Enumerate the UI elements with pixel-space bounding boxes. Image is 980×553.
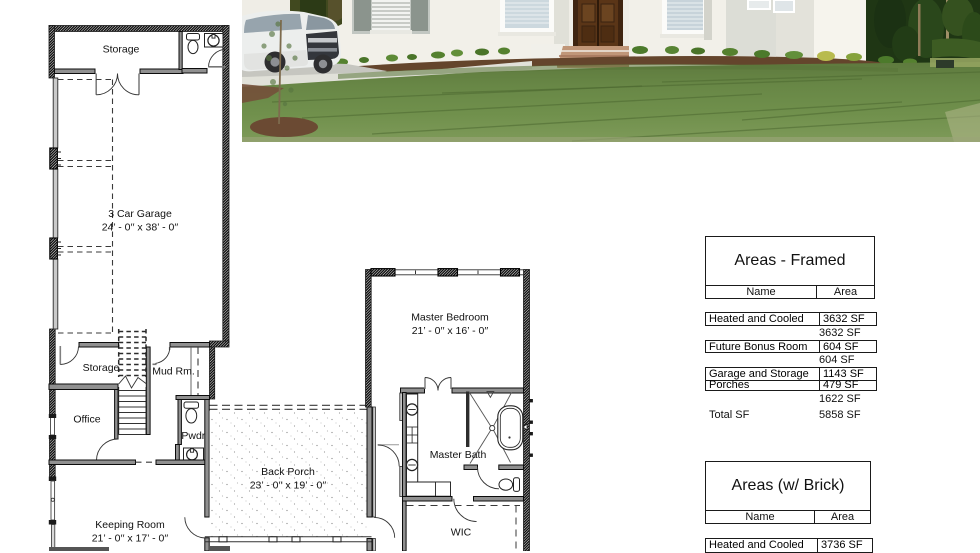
svg-text:Mud Rm.: Mud Rm. <box>152 366 195 378</box>
svg-text:3 Car Garage: 3 Car Garage <box>108 208 172 220</box>
svg-text:Back Porch: Back Porch <box>261 466 315 478</box>
svg-text:21’ - 0′′ x 16’ - 0′′: 21’ - 0′′ x 16’ - 0′′ <box>412 325 489 337</box>
svg-text:24’ - 0′′ x 38’ - 0′′: 24’ - 0′′ x 38’ - 0′′ <box>102 222 179 234</box>
svg-text:Master Bath: Master Bath <box>430 449 487 461</box>
svg-text:WIC: WIC <box>451 527 472 539</box>
svg-text:Storage: Storage <box>83 362 120 374</box>
svg-text:21’ - 0′′ x 17’ - 0′′: 21’ - 0′′ x 17’ - 0′′ <box>92 533 169 545</box>
svg-text:23’ - 0′′ x 19’ - 0′′: 23’ - 0′′ x 19’ - 0′′ <box>250 480 327 492</box>
svg-text:Master Bedroom: Master Bedroom <box>411 312 489 324</box>
svg-text:Storage: Storage <box>103 44 140 56</box>
svg-text:Pwdr.: Pwdr. <box>181 430 207 442</box>
svg-text:Office: Office <box>73 414 100 426</box>
svg-text:Keeping Room: Keeping Room <box>95 519 165 531</box>
